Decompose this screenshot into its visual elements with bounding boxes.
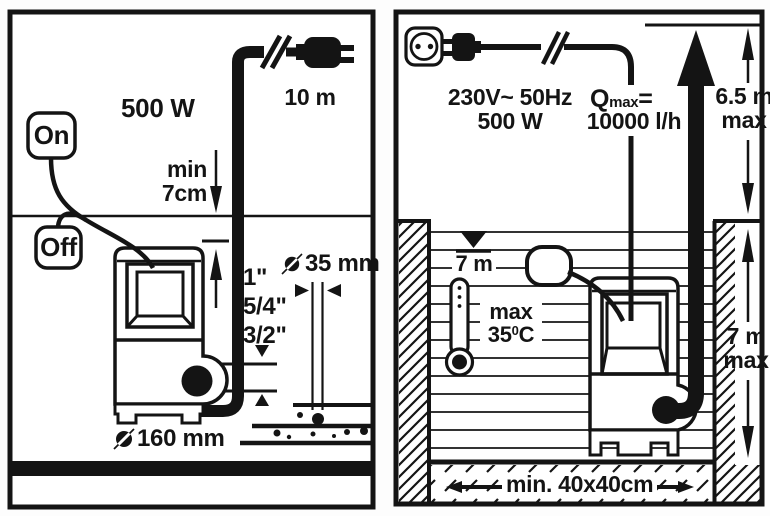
min-level-label: min 7cm: [150, 158, 207, 206]
cable-length-label: 10 m: [283, 86, 337, 110]
grain-diameter-label: 35 mm: [305, 252, 380, 277]
power-label: 500 W: [121, 95, 195, 122]
diagram-canvas: [0, 0, 770, 516]
depth-label: 7 m max: [718, 325, 770, 373]
voltage-label: 230V~ 50Hz 500 W: [443, 86, 577, 134]
level-mark-label: 7 m: [452, 253, 496, 276]
pump-spec-diagram: 500 W 10 m On Off min 7cm 1" 5/4" 3/2" 3…: [0, 0, 770, 516]
pit-size-label: min. 40x40cm: [502, 473, 657, 497]
off-label: Off: [36, 227, 81, 268]
pump-outlet: [182, 366, 213, 397]
floor-bar: [12, 461, 371, 476]
head-label: 6.5 m max: [712, 85, 770, 133]
base-diameter-label: 160 mm: [137, 427, 225, 452]
on-label: On: [28, 113, 75, 158]
temperature-label: max 350C: [480, 301, 542, 347]
flow-value-label: 10000 l/h: [586, 110, 682, 134]
thread-sizes-label: 1" 5/4" 3/2": [243, 264, 287, 350]
thermometer-icon: [447, 279, 473, 375]
float-switch-icon: [527, 247, 571, 285]
